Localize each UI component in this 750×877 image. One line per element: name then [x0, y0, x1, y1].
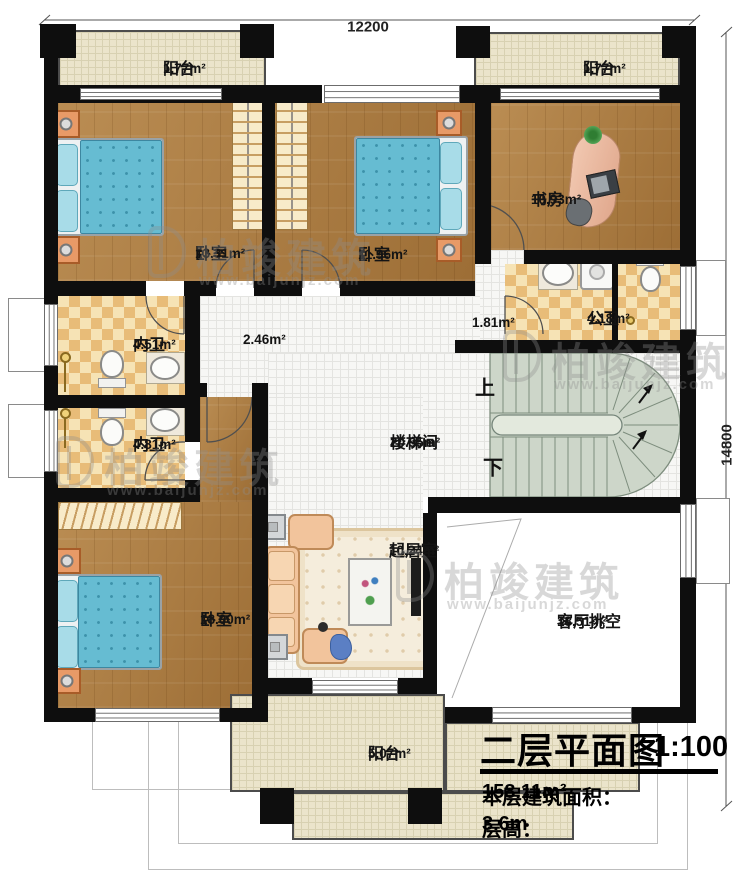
window	[324, 85, 460, 103]
wall-segment	[680, 56, 696, 270]
wall-segment	[475, 103, 491, 264]
column	[456, 26, 490, 58]
stair-down-label: 下	[483, 452, 503, 481]
wall-segment	[44, 281, 146, 296]
wall-segment	[252, 383, 268, 694]
column	[662, 26, 696, 58]
watermark-logo-icon	[503, 330, 541, 382]
watermark: 柏竣建筑 www.baijunjz.com	[148, 226, 388, 296]
stair-up-label: 上	[475, 372, 495, 401]
column	[260, 788, 294, 824]
watermark-logo-icon	[56, 436, 94, 488]
bay-window	[696, 260, 726, 336]
wall-segment	[185, 281, 200, 442]
window	[95, 708, 220, 722]
wall-segment	[398, 678, 428, 694]
bay-window	[8, 298, 46, 372]
column	[40, 24, 76, 58]
window	[492, 707, 632, 723]
dimension-top: 12200	[347, 19, 389, 36]
wall-segment	[220, 708, 266, 722]
bay-window	[696, 498, 730, 584]
plan-scale: 1:100	[654, 731, 728, 764]
bay-window	[8, 404, 46, 478]
watermark: 柏竣建筑 www.baijunjz.com	[503, 330, 743, 400]
wall-segment	[445, 707, 492, 723]
window	[44, 304, 58, 366]
watermark: 柏竣建筑 www.baijunjz.com	[56, 436, 296, 506]
dimension-right: 14800	[719, 424, 736, 466]
wall-segment	[632, 707, 696, 723]
wall-segment	[428, 497, 696, 513]
wall-segment	[44, 27, 58, 722]
title-rule	[480, 769, 718, 774]
balcony-slider	[80, 88, 222, 100]
wall-segment	[200, 383, 207, 397]
watermark: 柏竣建筑 www.baijunjz.com	[396, 550, 636, 620]
watermark-logo-icon	[396, 550, 434, 602]
column	[408, 788, 442, 824]
wall-segment	[44, 708, 95, 722]
wall-segment	[44, 395, 200, 408]
plan-title: 二层平面图	[480, 722, 665, 774]
wall-segment	[680, 578, 696, 722]
watermark-logo-icon	[148, 226, 186, 278]
floor-plan-canvas: 阳台 1.77m² 阳台 1.77m² 卧室 13.31m² 卧室 11.96m…	[0, 0, 750, 877]
window	[680, 266, 696, 330]
window	[680, 504, 696, 578]
wall-segment	[524, 250, 696, 264]
balcony-slider	[500, 88, 660, 100]
balcony-slider	[312, 680, 398, 694]
column	[240, 24, 274, 58]
